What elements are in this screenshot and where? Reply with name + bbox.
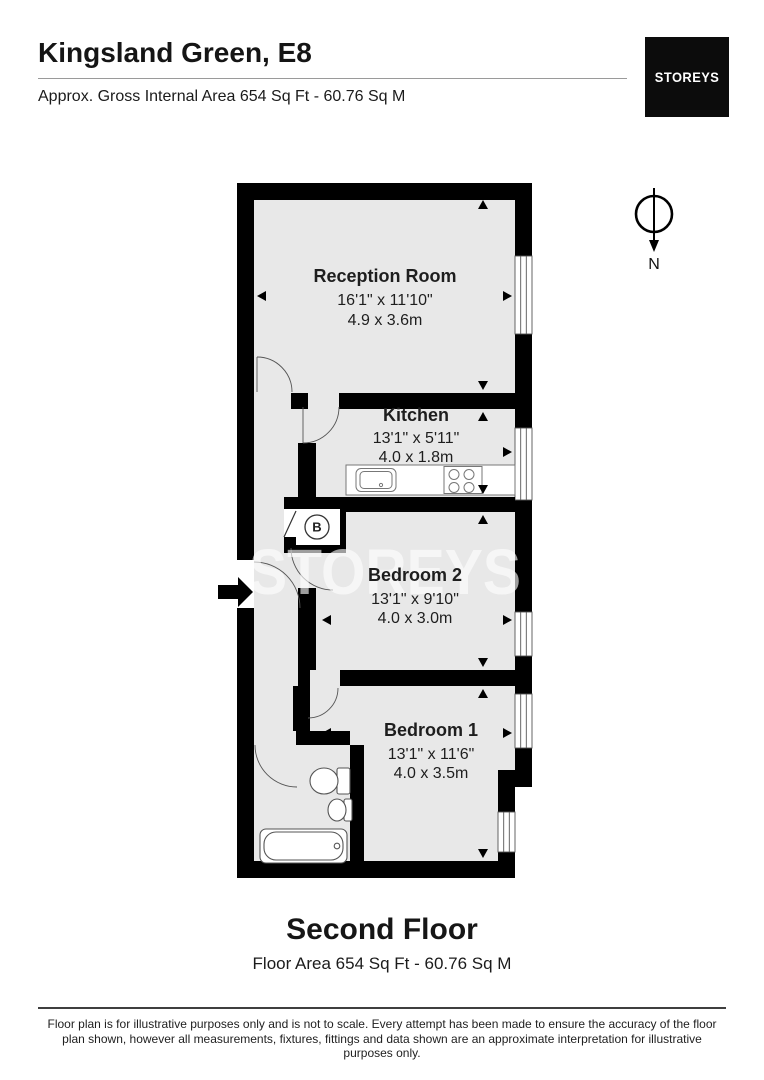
label-bedroom1: Bedroom 1 13'1" x 11'6" 4.0 x 3.5m <box>384 720 478 782</box>
compass-icon: N <box>636 188 672 273</box>
room-imperial: 13'1" x 5'11" <box>373 430 460 447</box>
label-kitchen: Kitchen 13'1" x 5'11" 4.0 x 1.8m <box>373 405 460 466</box>
room-metric: 4.0 x 3.0m <box>378 610 453 627</box>
floorplan-page: Kingsland Green, E8 Approx. Gross Intern… <box>0 0 764 1080</box>
room-imperial: 16'1" x 11'10" <box>337 292 432 309</box>
sink-icon <box>356 469 396 492</box>
hob-icon <box>444 467 482 494</box>
kitchen-fixtures <box>346 465 515 495</box>
label-bedroom2: Bedroom 2 13'1" x 9'10" 4.0 x 3.0m <box>368 565 462 627</box>
floor-name: Second Floor <box>0 912 764 948</box>
window-bedroom1-upper <box>515 694 532 748</box>
bathtub-icon <box>260 829 347 863</box>
compass-north-label: N <box>648 256 660 273</box>
room-name: Kitchen <box>383 405 449 425</box>
floor-caption: Second Floor Floor Area 654 Sq Ft - 60.7… <box>0 912 764 974</box>
room-name: Bedroom 2 <box>368 565 462 585</box>
room-imperial: 13'1" x 9'10" <box>371 591 459 608</box>
window-bedroom2 <box>515 612 532 656</box>
boiler-label: B <box>312 520 321 535</box>
basin-icon <box>328 799 352 821</box>
window-bedroom1-lower <box>498 812 515 852</box>
window-kitchen <box>515 428 532 500</box>
window-reception <box>515 256 532 334</box>
floor-area: Floor Area 654 Sq Ft - 60.76 Sq M <box>0 954 764 974</box>
footer-disclaimer: Floor plan is for illustrative purposes … <box>38 1007 726 1061</box>
room-metric: 4.0 x 1.8m <box>379 449 454 466</box>
room-name: Reception Room <box>313 266 456 286</box>
room-metric: 4.9 x 3.6m <box>348 312 423 329</box>
room-metric: 4.0 x 3.5m <box>394 765 469 782</box>
room-imperial: 13'1" x 11'6" <box>388 746 475 763</box>
room-name: Bedroom 1 <box>384 720 478 740</box>
toilet-icon <box>310 768 350 794</box>
